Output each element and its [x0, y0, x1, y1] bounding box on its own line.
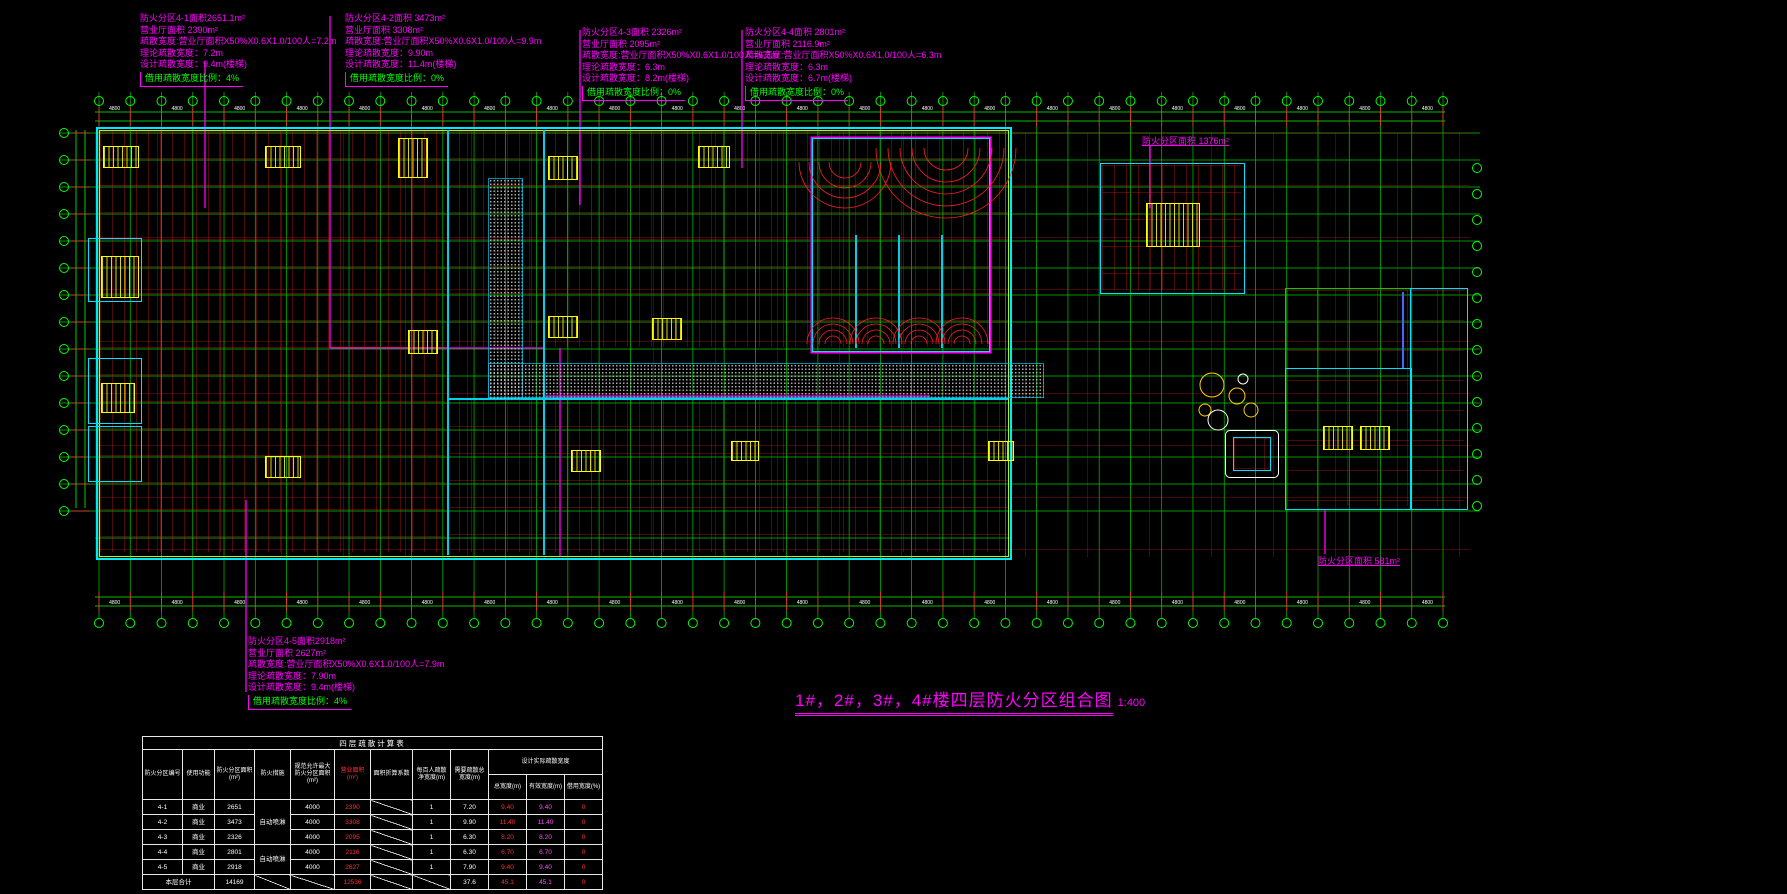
table-row-cell: 6.70 — [489, 845, 527, 860]
table-row-cell: 0 — [565, 815, 603, 830]
table-row-cell: 4000 — [291, 845, 335, 860]
drawing-scale: 1:400 — [1118, 697, 1146, 709]
column-header: 每百人疏散净宽度(m) — [413, 750, 451, 800]
table-cell: 自动喷淋 — [255, 845, 291, 875]
table-row-cell: 1 — [413, 830, 451, 845]
table-row-cell: 1 — [413, 845, 451, 860]
evacuation-table: 四层疏散计算表防火分区编号使用功能防火分区面积(m²)防火措施规范允许最大防火分… — [142, 736, 603, 890]
table-row-cell: 0 — [565, 860, 603, 875]
table-row-cell: 商业 — [183, 845, 215, 860]
total-cell: 45.1 — [489, 875, 527, 890]
annotation-line: 疏散宽度:营业厅面积X50%X0.6X1.0/100人=6.3m — [745, 50, 941, 62]
table-row-cell: 3473 — [215, 815, 255, 830]
table-row-cell: 4000 — [291, 860, 335, 875]
borrow-ratio-line: 借用疏散宽度比例：0% — [345, 72, 448, 88]
total-cell: 14169 — [215, 875, 255, 890]
column-header: 营业面积(m²) — [335, 750, 371, 800]
column-header: 防火分区编号 — [143, 750, 183, 800]
table-row-cell: 4-4 — [143, 845, 183, 860]
table-row-cell: 商业 — [183, 860, 215, 875]
annotation-line: 防火分区4-4面积 2801m² — [745, 27, 941, 39]
annotation-line: 理论疏散宽度：6.3m — [745, 62, 941, 74]
total-cell — [291, 875, 335, 890]
table-row-cell: 0 — [565, 830, 603, 845]
fire-zone-annotation-zone-4-5: 防火分区4-5面积2918m²营业厅面积 2627m²疏散宽度:营业厅面积X50… — [248, 636, 444, 710]
annotation-line: 理论疏散宽度：7.2m — [140, 48, 336, 60]
table-row-cell: 9.40 — [527, 860, 565, 875]
right-zone-area-label: 防火分区面积 581m² — [1318, 554, 1400, 567]
column-header: 规范允许最大防火分区面积(m²) — [291, 750, 335, 800]
borrow-ratio-line: 借用疏散宽度比例：4% — [248, 695, 351, 711]
table-row-cell: 4-2 — [143, 815, 183, 830]
borrow-ratio-line: 借用疏散宽度比例：0% — [582, 86, 685, 102]
table-row-cell: 6.30 — [451, 830, 489, 845]
table-row-cell: 9.40 — [527, 800, 565, 815]
annotation-line: 疏散宽度:营业厅面积X50%X0.6X1.0/100人=7.2m — [140, 36, 336, 48]
table-row-cell: 4000 — [291, 815, 335, 830]
annotation-line: 设计疏散宽度：6.7m(楼梯) — [745, 73, 941, 85]
column-header: 面积折算系数 — [371, 750, 413, 800]
total-cell — [413, 875, 451, 890]
annotation-line: 防火分区4-5面积2918m² — [248, 636, 444, 648]
sub-column-header: 总宽度(m) — [489, 775, 527, 800]
drawing-title: 1#，2#，3#，4#楼四层防火分区组合图1:400 — [795, 686, 1145, 714]
total-label: 本层合计 — [143, 875, 215, 890]
table-row-cell: 11.40 — [489, 815, 527, 830]
annotation-line: 营业厅面积 2390m² — [140, 25, 336, 37]
annotation-line: 理论疏散宽度：7.90m — [248, 671, 444, 683]
table-row-cell — [371, 845, 413, 860]
annotation-line: 防火分区4-2面积 3473m² — [345, 13, 541, 25]
group-header: 设计实际疏散宽度 — [489, 750, 603, 775]
table-row-cell: 2390 — [335, 800, 371, 815]
total-cell: 45.1 — [527, 875, 565, 890]
table-row-cell — [371, 860, 413, 875]
table-row-cell: 3308 — [335, 815, 371, 830]
cinema-seat-arcs — [799, 148, 1016, 344]
evacuation-calc-table: 四层疏散计算表防火分区编号使用功能防火分区面积(m²)防火措施规范允许最大防火分… — [142, 736, 603, 890]
table-cell: 自动喷淋 — [255, 800, 291, 845]
table-row-cell: 4-5 — [143, 860, 183, 875]
annotation-line: 防火分区4-1面积2651.1m² — [140, 13, 336, 25]
table-row-cell: 2801 — [215, 845, 255, 860]
annotation-line: 疏散宽度:营业厅面积X50%X0.6X1.0/100人=7.9m — [248, 659, 444, 671]
annotation-line: 疏散宽度:营业厅面积X50%X0.6X1.0/100人=9.9m — [345, 36, 541, 48]
borrow-ratio-line: 借用疏散宽度比例：0% — [745, 86, 848, 102]
borrow-ratio-line: 借用疏散宽度比例：4% — [140, 72, 243, 88]
column-header: 防火措施 — [255, 750, 291, 800]
table-row-cell: 1 — [413, 815, 451, 830]
column-header: 使用功能 — [183, 750, 215, 800]
table-row-cell — [371, 800, 413, 815]
table-row-cell: 1 — [413, 800, 451, 815]
annotation-line: 设计疏散宽度：9.4m(楼梯) — [140, 59, 336, 71]
table-row-cell: 6.70 — [527, 845, 565, 860]
table-row-cell: 0 — [565, 800, 603, 815]
table-row-cell: 2918 — [215, 860, 255, 875]
table-row-cell: 8.20 — [489, 830, 527, 845]
table-row-cell: 8.20 — [527, 830, 565, 845]
annotation-line: 营业厅面积 3308m² — [345, 25, 541, 37]
table-row-cell: 2116 — [335, 845, 371, 860]
sub-column-header: 借用宽度(%) — [565, 775, 603, 800]
table-row-cell: 9.40 — [489, 860, 527, 875]
table-row-cell: 2627 — [335, 860, 371, 875]
annotation-line: 理论疏散宽度：9.90m — [345, 48, 541, 60]
table-row-cell: 4-3 — [143, 830, 183, 845]
table-row-cell: 7.20 — [451, 800, 489, 815]
total-cell: 37.6 — [451, 875, 489, 890]
cad-canvas: 4800480048004800480048004800480048004800… — [0, 0, 1787, 894]
table-row-cell — [371, 815, 413, 830]
fire-zone-annotation-zone-4-4: 防火分区4-4面积 2801m²营业厅面积 2116.9m²疏散宽度:营业厅面积… — [745, 27, 941, 101]
drawing-title-text: 1#，2#，3#，4#楼四层防火分区组合图 — [795, 686, 1113, 714]
table-row-cell: 6.30 — [451, 845, 489, 860]
fire-zone-annotation-zone-4-1: 防火分区4-1面积2651.1m²营业厅面积 2390m²疏散宽度:营业厅面积X… — [140, 13, 336, 87]
table-row-cell: 2095 — [335, 830, 371, 845]
table-row-cell: 9.40 — [489, 800, 527, 815]
table-row-cell — [371, 830, 413, 845]
table-row-cell: 商业 — [183, 800, 215, 815]
table-row-cell: 4000 — [291, 800, 335, 815]
annotation-line: 营业厅面积 2116.9m² — [745, 39, 941, 51]
fire-zone-annotation-zone-4-2: 防火分区4-2面积 3473m²营业厅面积 3308m²疏散宽度:营业厅面积X5… — [345, 13, 541, 87]
annotation-line: 设计疏散宽度：9.4m(楼梯) — [248, 682, 444, 694]
tower-zone-area-label: 防火分区面积 1376m² — [1142, 134, 1229, 147]
table-row-cell: 7.90 — [451, 860, 489, 875]
total-cell — [255, 875, 291, 890]
sub-column-header: 有效宽度(m) — [527, 775, 565, 800]
total-cell — [371, 875, 413, 890]
table-title: 四层疏散计算表 — [143, 737, 603, 750]
table-row-cell: 9.90 — [451, 815, 489, 830]
table-row-cell: 0 — [565, 845, 603, 860]
table-row-cell: 商业 — [183, 815, 215, 830]
annotation-line: 设计疏散宽度：11.4m(楼梯) — [345, 59, 541, 71]
landscape-circles — [1199, 373, 1258, 430]
table-row-cell: 4000 — [291, 830, 335, 845]
table-row-cell: 4-1 — [143, 800, 183, 815]
table-row-cell: 2651 — [215, 800, 255, 815]
total-cell: 0 — [565, 875, 603, 890]
annotation-line: 营业厅面积 2627m² — [248, 648, 444, 660]
table-row-cell: 2326 — [215, 830, 255, 845]
table-row-cell: 商业 — [183, 830, 215, 845]
table-row-cell: 1 — [413, 860, 451, 875]
table-row-cell: 11.40 — [527, 815, 565, 830]
total-cell: 12536 — [335, 875, 371, 890]
column-header: 防火分区面积(m²) — [215, 750, 255, 800]
column-header: 需要疏散总宽度(m) — [451, 750, 489, 800]
